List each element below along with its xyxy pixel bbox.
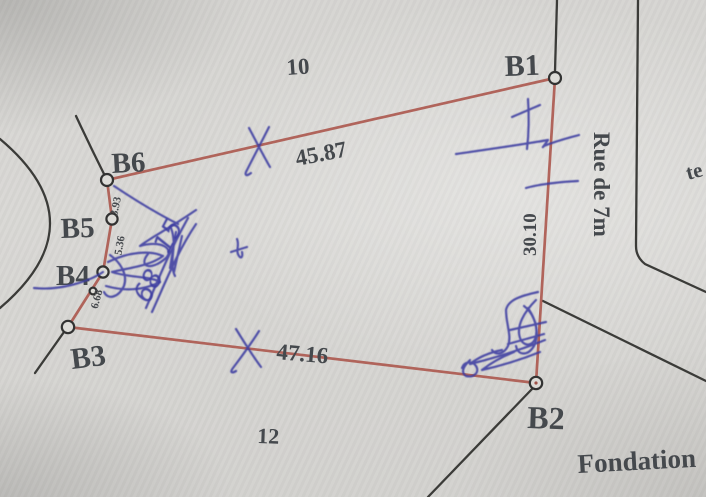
pen-x-mark-top bbox=[246, 127, 270, 175]
point-label-b1: B1 bbox=[504, 49, 540, 83]
survey-plan-scan: B1 B2 B3 B4 B5 B6 10 12 45.87 47.16 30.1… bbox=[0, 0, 706, 497]
point-b2-center-dot bbox=[534, 381, 537, 384]
pen-small-mark bbox=[231, 239, 247, 257]
road-east-boundary-line bbox=[636, 0, 706, 292]
point-label-b2: B2 bbox=[527, 399, 566, 436]
line-into-b6 bbox=[76, 116, 104, 174]
point-marker-b1 bbox=[549, 72, 561, 84]
point-label-b6: B6 bbox=[111, 146, 146, 180]
measurement-b3-b2: 47.16 bbox=[276, 339, 330, 368]
measurement-b1-b2: 30.10 bbox=[520, 213, 541, 256]
point-label-b5: B5 bbox=[60, 212, 95, 245]
parcel-boundary-polygon bbox=[68, 78, 555, 383]
road-line-through-b1 bbox=[555, 0, 557, 71]
plan-drawing: B1 B2 B3 B4 B5 B6 10 12 45.87 47.16 30.1… bbox=[0, 0, 706, 497]
pen-arrow2-left-of-b2 bbox=[482, 352, 540, 370]
point-label-b3: B3 bbox=[69, 339, 108, 376]
pen-bracket-vertical bbox=[527, 99, 529, 149]
street-label: Rue de 7m bbox=[589, 132, 614, 237]
neighbour-diagonal-line bbox=[543, 301, 706, 381]
right-edge-partial-label: te bbox=[683, 157, 705, 184]
pen-dash-near-b1 bbox=[512, 105, 540, 117]
pen-stroke-crossing-right-edge bbox=[526, 181, 578, 188]
west-arc-boundary bbox=[0, 139, 50, 308]
line-from-b2-southwest bbox=[428, 389, 532, 497]
handwritten-number-upper: 15 bbox=[148, 215, 190, 258]
measurement-b6-b1: 45.87 bbox=[293, 136, 349, 170]
parcel-number-bottom: 12 bbox=[257, 423, 280, 449]
handwritten-number-lower: 68 bbox=[128, 265, 170, 308]
foundation-label: Fondation bbox=[577, 443, 697, 479]
pen-bracket-horizontal bbox=[456, 135, 579, 154]
measurement-b5-b4: 5.36 bbox=[112, 234, 127, 256]
line-from-b3-southwest bbox=[35, 332, 64, 373]
parcel-number-top: 10 bbox=[286, 53, 311, 80]
point-marker-b3 bbox=[62, 321, 74, 333]
